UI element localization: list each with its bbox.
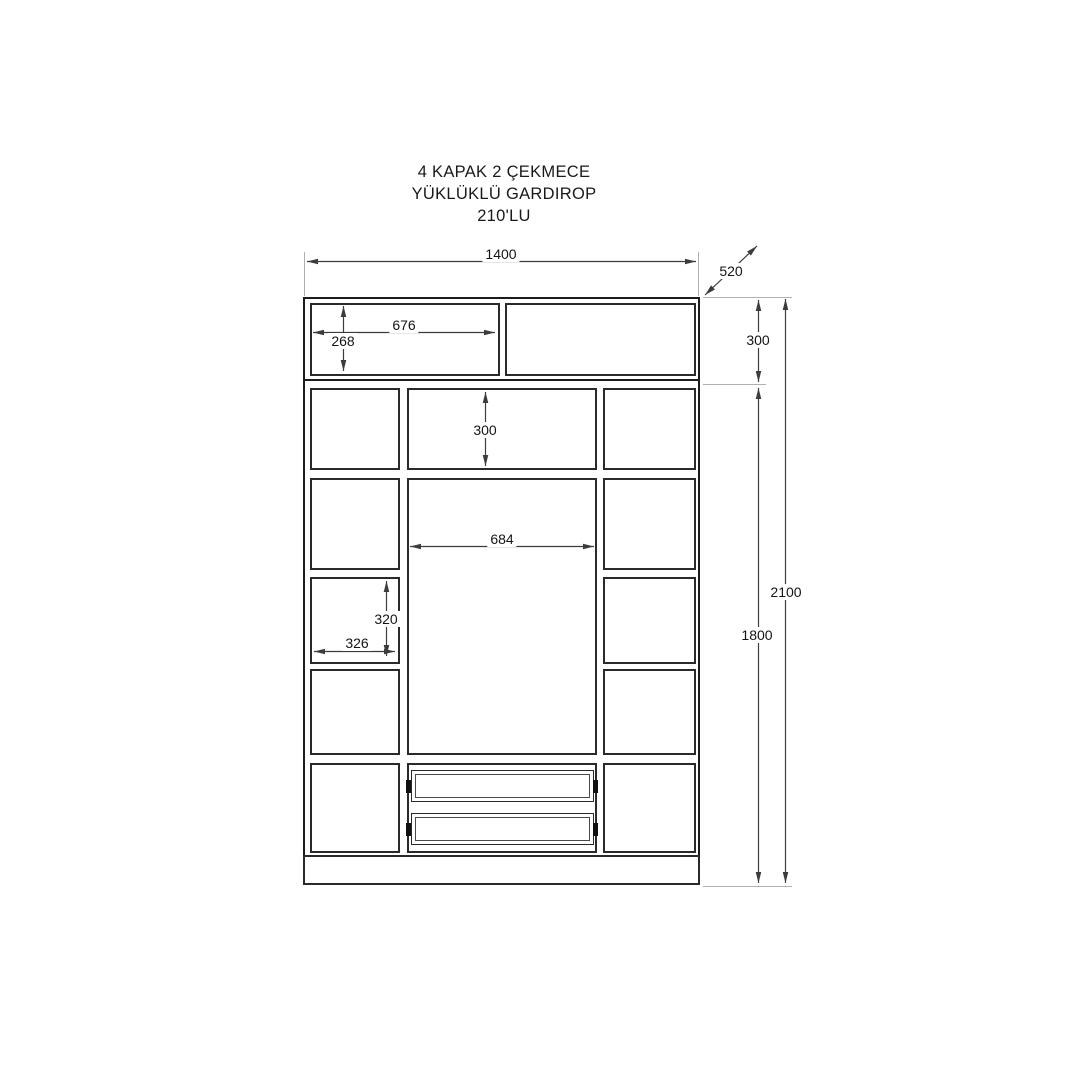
dim-top-section-height-label: 300 [743,332,772,348]
drawing-title: 4 KAPAK 2 ÇEKMECE YÜKLÜKLÜ GARDIROP 210'… [304,161,704,227]
dim-middle-opening-width-label: 684 [487,531,516,547]
dim-upper-compartment-height-label: 300 [470,422,499,438]
dim-depth-label: 520 [716,263,745,279]
title-line-2: YÜKLÜKLÜ GARDIROP [304,183,704,205]
dim-top-door-width-label: 676 [389,317,418,333]
dim-top-door-height-label: 268 [328,333,357,349]
dim-overall-width-label: 1400 [482,246,519,262]
dim-side-compartment-width-label: 326 [342,635,371,651]
dim-side-compartment-height-label: 320 [371,611,400,627]
dim-body-height-label: 1800 [738,627,775,643]
title-line-1: 4 KAPAK 2 ÇEKMECE [304,161,704,183]
title-line-3: 210'LU [304,205,704,227]
dim-total-height-label: 2100 [767,584,804,600]
technical-drawing-canvas: 4 KAPAK 2 ÇEKMECE YÜKLÜKLÜ GARDIROP 210'… [0,0,1080,1080]
